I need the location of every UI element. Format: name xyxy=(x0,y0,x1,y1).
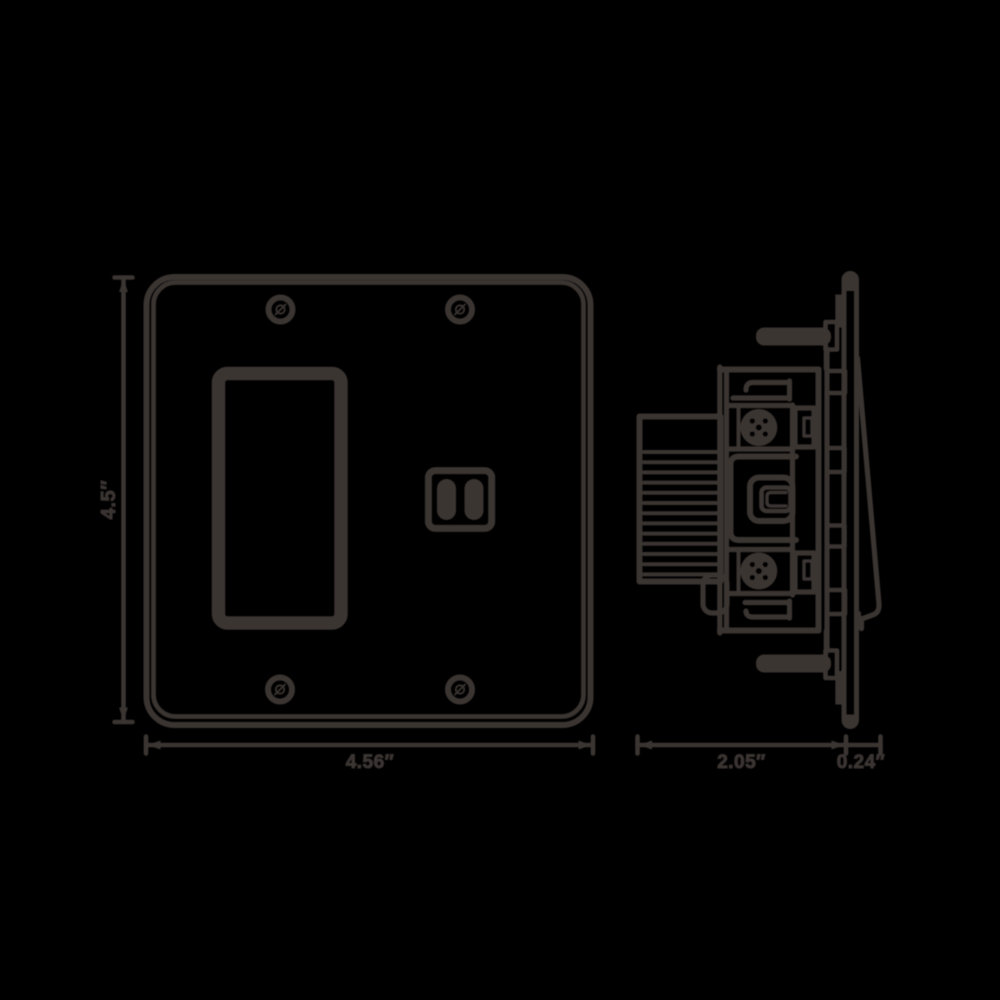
svg-text:4.5″: 4.5″ xyxy=(98,480,120,519)
svg-text:4.56″: 4.56″ xyxy=(346,752,395,773)
svg-text:0.24″: 0.24″ xyxy=(837,752,886,773)
svg-text:2.05″: 2.05″ xyxy=(717,752,766,773)
